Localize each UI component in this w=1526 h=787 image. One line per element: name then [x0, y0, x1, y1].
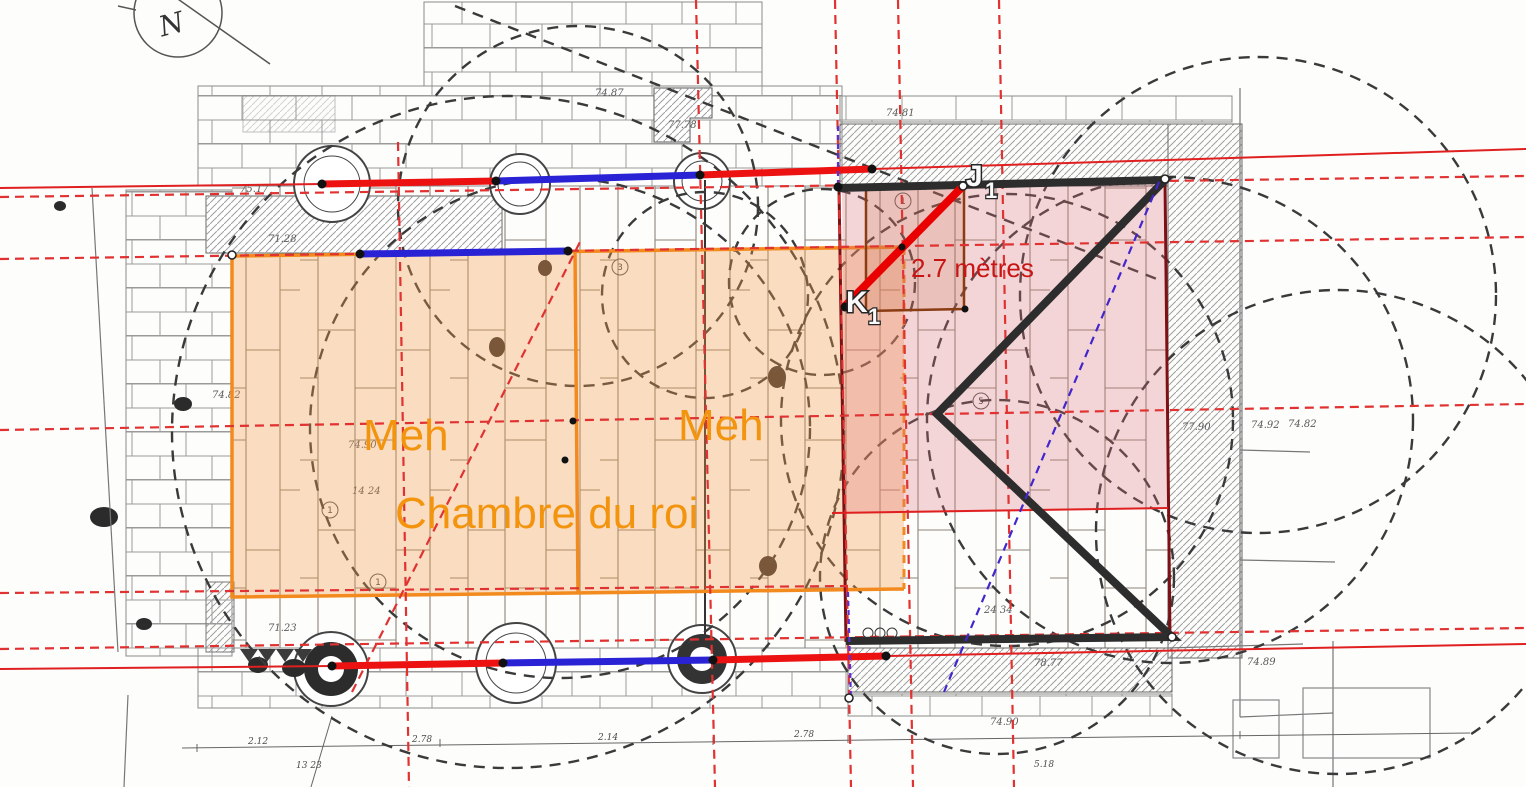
dimension-line [182, 716, 1470, 787]
plan-number: 77.90 [1182, 422, 1211, 433]
orange-fill [232, 247, 904, 597]
compass-label: N [154, 5, 189, 44]
plan-number: 77.78 [668, 120, 697, 131]
bottom-right-wall-row [848, 694, 1172, 716]
label-measurement: 2.7 mètres [911, 253, 1034, 283]
compass-icon: N [118, 0, 270, 64]
label-meh-left: Meh [363, 411, 449, 460]
plan-number: 74.87 [595, 88, 624, 99]
plan-number: 74.92 [1251, 420, 1280, 431]
plan-number: 78.77 [1034, 658, 1063, 669]
plan-number: 24 34 [983, 605, 1013, 616]
plan-number: 2.12 [247, 737, 268, 747]
label-point-k-sub: 1 [868, 304, 880, 329]
top-right-hatched-wall [840, 124, 1168, 186]
label-chambre-du-roi: Chambre du roi [395, 489, 698, 538]
plan-number: 5.18 [1034, 760, 1054, 770]
pyramid-plan-diagram: N 74.8777.7875.1771.2874.8274.9014 2471.… [0, 0, 1526, 787]
label-point-j: J [966, 160, 983, 193]
orange-rectangle-overlay [232, 247, 904, 597]
plan-number: 2.78 [793, 730, 814, 740]
label-meh-right: Meh [678, 401, 764, 450]
plan-number: 74.89 [1247, 657, 1276, 668]
left-small-hatch [206, 582, 234, 652]
plan-number: 74.82 [1288, 419, 1317, 430]
plan-number: 2.78 [411, 735, 432, 745]
plan-number: 2.14 [597, 733, 618, 743]
plan-number: 71.28 [268, 234, 297, 245]
plan-canvas: N 74.8777.7875.1771.2874.8274.9014 2471.… [0, 0, 1526, 787]
label-point-j-sub: 1 [985, 178, 997, 203]
label-point-k: K [846, 286, 868, 319]
top-left-relief-box [243, 96, 335, 132]
plan-number: 71.23 [268, 623, 297, 634]
plan-number: 74.90 [990, 717, 1019, 728]
plan-number: 13 23 [296, 761, 322, 771]
